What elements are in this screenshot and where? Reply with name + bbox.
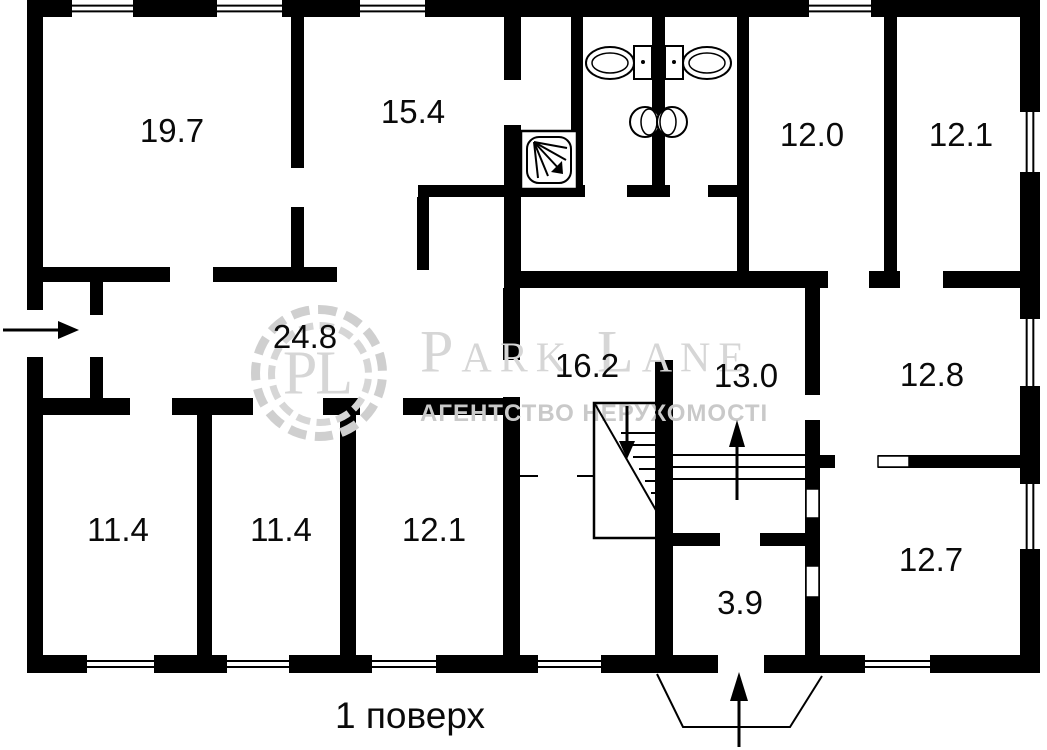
room-area-label-hall-16-2: 16.2 xyxy=(555,347,619,385)
toilet-bowl-icon xyxy=(586,47,634,79)
room-area-label-room-12-1-bottom: 12.1 xyxy=(402,511,466,549)
floor-caption: 1 поверх xyxy=(335,695,485,737)
room-area-label-room-12-8: 12.8 xyxy=(900,356,964,394)
room-area-label-room-12-0: 12.0 xyxy=(780,116,844,154)
room-area-label-room-19-7: 19.7 xyxy=(140,112,204,150)
room-area-label-room-15-4: 15.4 xyxy=(381,93,445,131)
shower-tray-icon xyxy=(521,131,577,189)
room-area-label-entry-3-9: 3.9 xyxy=(717,584,763,622)
room-area-label-room-11-4-left: 11.4 xyxy=(87,511,149,549)
room-area-label-room-12-7: 12.7 xyxy=(899,541,963,579)
toilet-tank-dot xyxy=(641,60,645,64)
floor-plan: PL Park Lane АГЕНТСТВО НЕРУХОМОСТІ 19.71… xyxy=(0,0,1047,750)
stairs-up-arrow-head xyxy=(729,420,745,447)
room-area-label-hall-13-0: 13.0 xyxy=(714,357,778,395)
toilet-tank-dot xyxy=(672,60,676,64)
room-area-label-room-11-4-right: 11.4 xyxy=(250,511,312,549)
entrance-arrow-bottom-head xyxy=(730,672,748,701)
room-area-label-room-12-1-top: 12.1 xyxy=(929,116,993,154)
entrance-arrow-left-head xyxy=(58,321,79,339)
room-area-label-corridor-24-8: 24.8 xyxy=(273,318,337,356)
toilet-bowl-icon xyxy=(683,47,731,79)
